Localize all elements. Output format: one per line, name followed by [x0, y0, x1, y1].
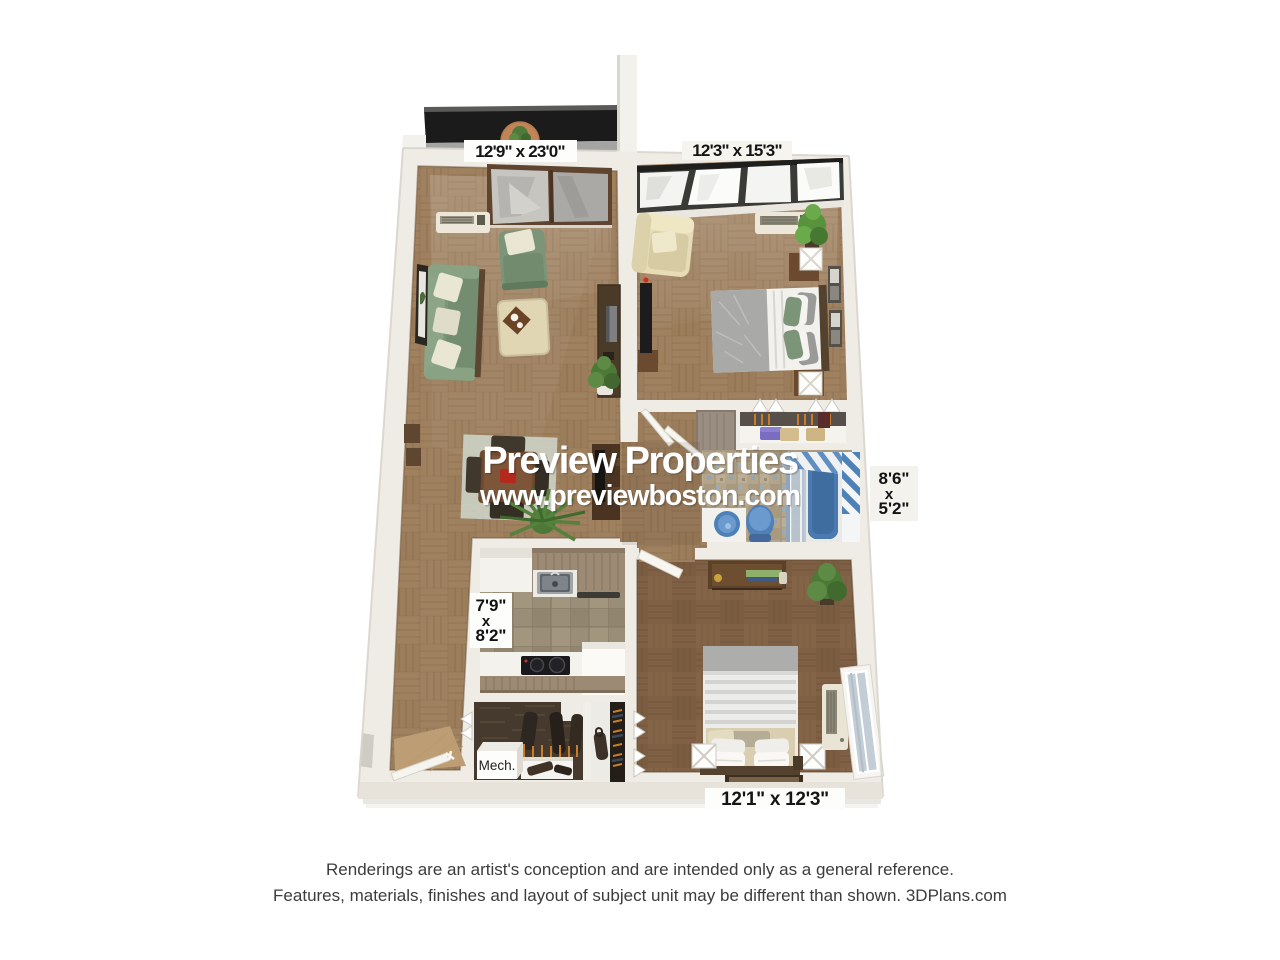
- svg-text:8'6": 8'6": [878, 469, 909, 488]
- svg-text:12'1" x 12'3": 12'1" x 12'3": [721, 789, 829, 810]
- svg-text:8'2": 8'2": [475, 626, 506, 645]
- svg-text:5'2": 5'2": [878, 499, 909, 518]
- svg-text:12'9" x 23'0": 12'9" x 23'0": [475, 142, 564, 161]
- svg-text:www.previewboston.com: www.previewboston.com: [479, 480, 800, 512]
- svg-text:Mech.: Mech.: [479, 758, 516, 773]
- svg-text:Preview Properties: Preview Properties: [482, 440, 798, 482]
- svg-text:7'9": 7'9": [475, 596, 506, 615]
- svg-text:12'3" x 15'3": 12'3" x 15'3": [692, 141, 781, 160]
